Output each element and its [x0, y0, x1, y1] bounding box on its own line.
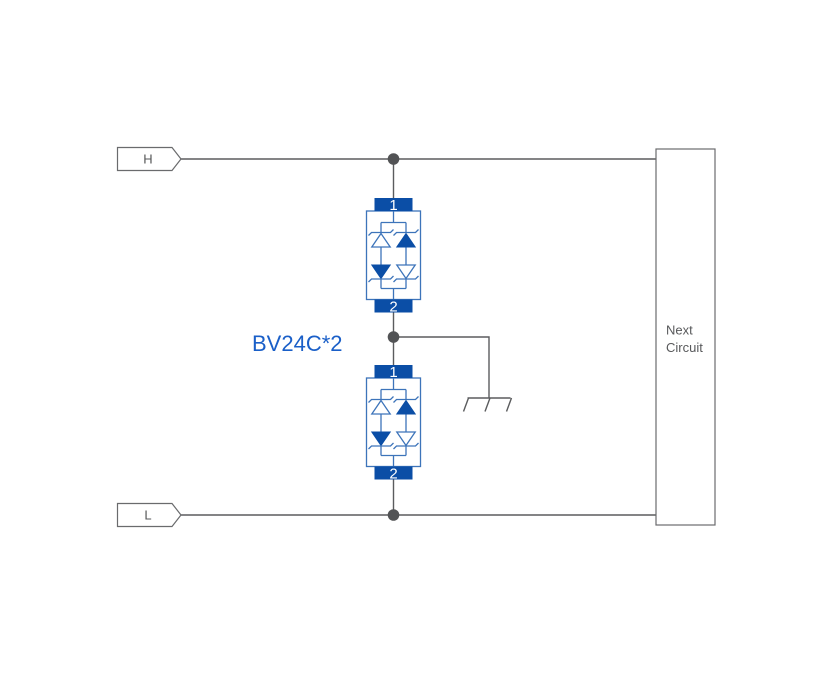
svg-text:1: 1 — [389, 364, 397, 381]
svg-text:Next: Next — [666, 323, 693, 338]
svg-text:Circuit: Circuit — [666, 340, 703, 355]
svg-text:2: 2 — [389, 299, 397, 316]
svg-text:2: 2 — [389, 466, 397, 483]
svg-text:BV24C*2: BV24C*2 — [252, 331, 343, 356]
svg-text:H: H — [143, 152, 152, 167]
svg-text:1: 1 — [389, 197, 397, 214]
svg-text:L: L — [144, 508, 151, 523]
